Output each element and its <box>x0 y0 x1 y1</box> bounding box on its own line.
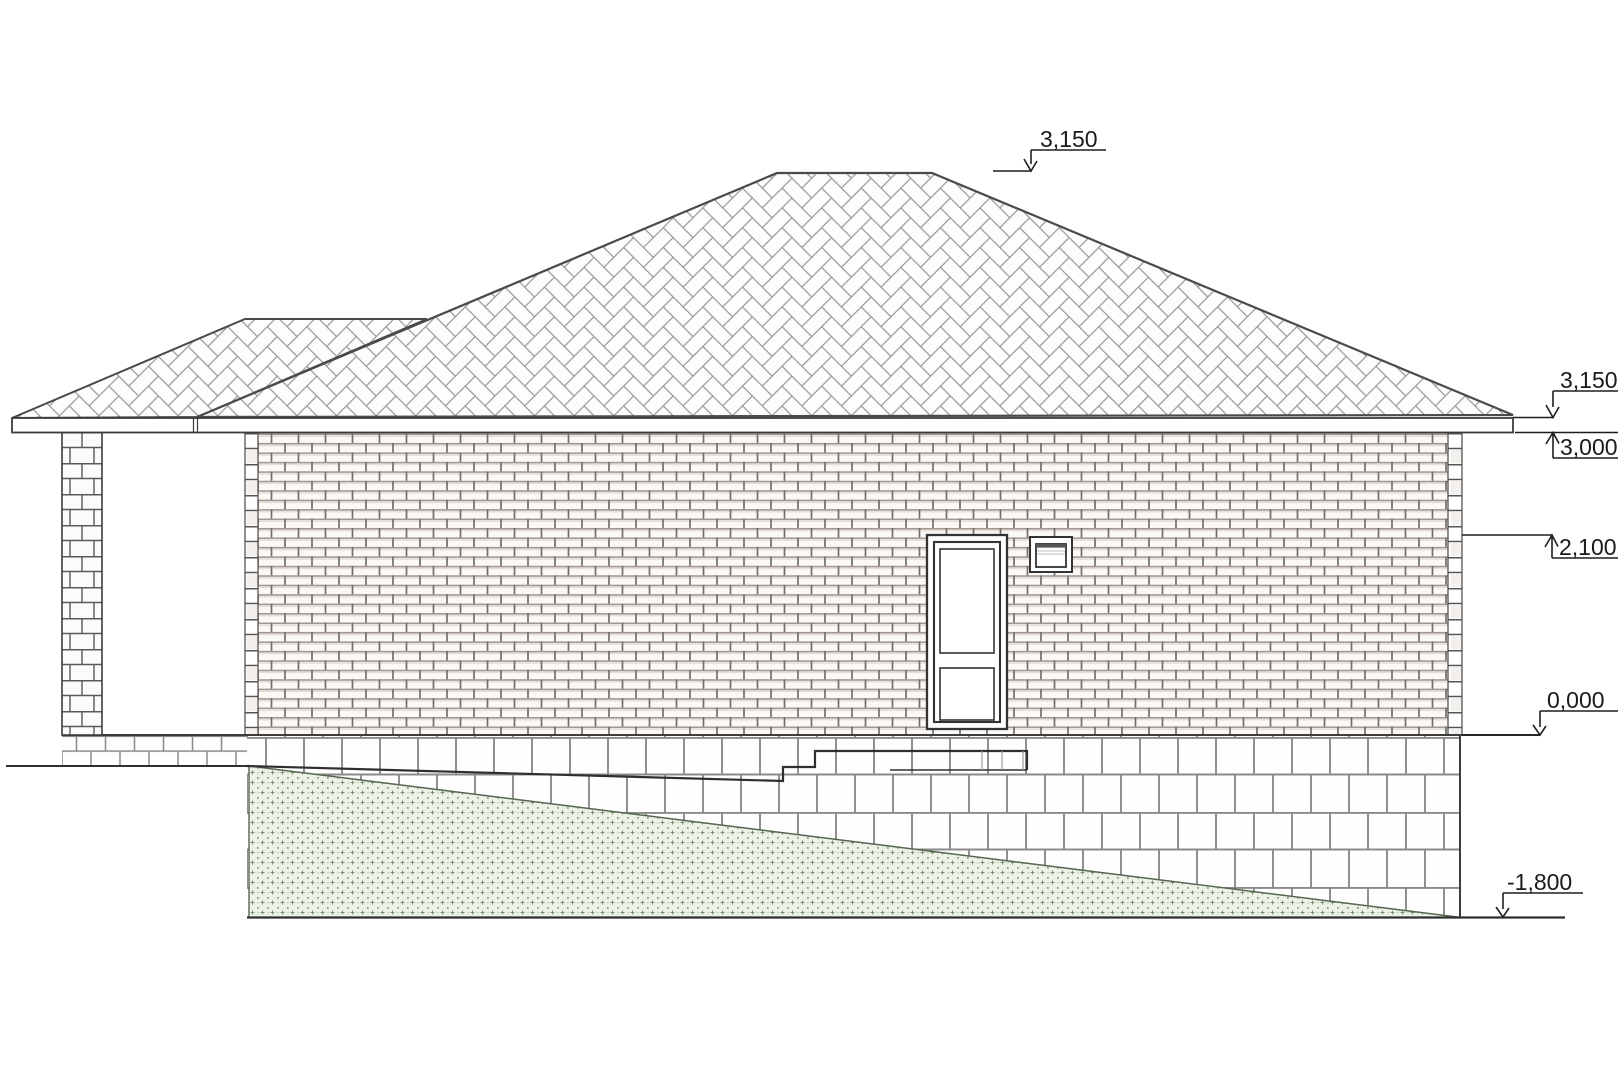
porch-column <box>62 432 102 735</box>
small-window <box>1030 537 1072 572</box>
elevation-value: 3,150 <box>1560 367 1618 393</box>
elevation-value: 0,000 <box>1547 687 1605 713</box>
porch-foundation <box>62 735 247 766</box>
elevation-drawing: 3,150 3,150 3,000 2,100 0,000 -1,800 <box>0 0 1620 1080</box>
left-corner-quoins <box>245 433 258 735</box>
entrance-door <box>927 535 1007 729</box>
elevation-value: 3,000 <box>1560 434 1618 460</box>
right-corner-quoins <box>1448 433 1462 735</box>
elevation-value: 3,150 <box>1040 126 1098 152</box>
elevation-value: 2,100 <box>1559 534 1617 560</box>
elevation-sheet: 3,150 3,150 3,000 2,100 0,000 -1,800 <box>0 0 1620 1080</box>
door-lower-glass <box>940 668 994 720</box>
brick-wall <box>258 433 1448 735</box>
window-top-bar <box>1036 544 1066 548</box>
elevation-value: -1,800 <box>1507 869 1572 895</box>
fascia-board <box>12 418 1513 433</box>
door-upper-glass <box>940 549 994 653</box>
